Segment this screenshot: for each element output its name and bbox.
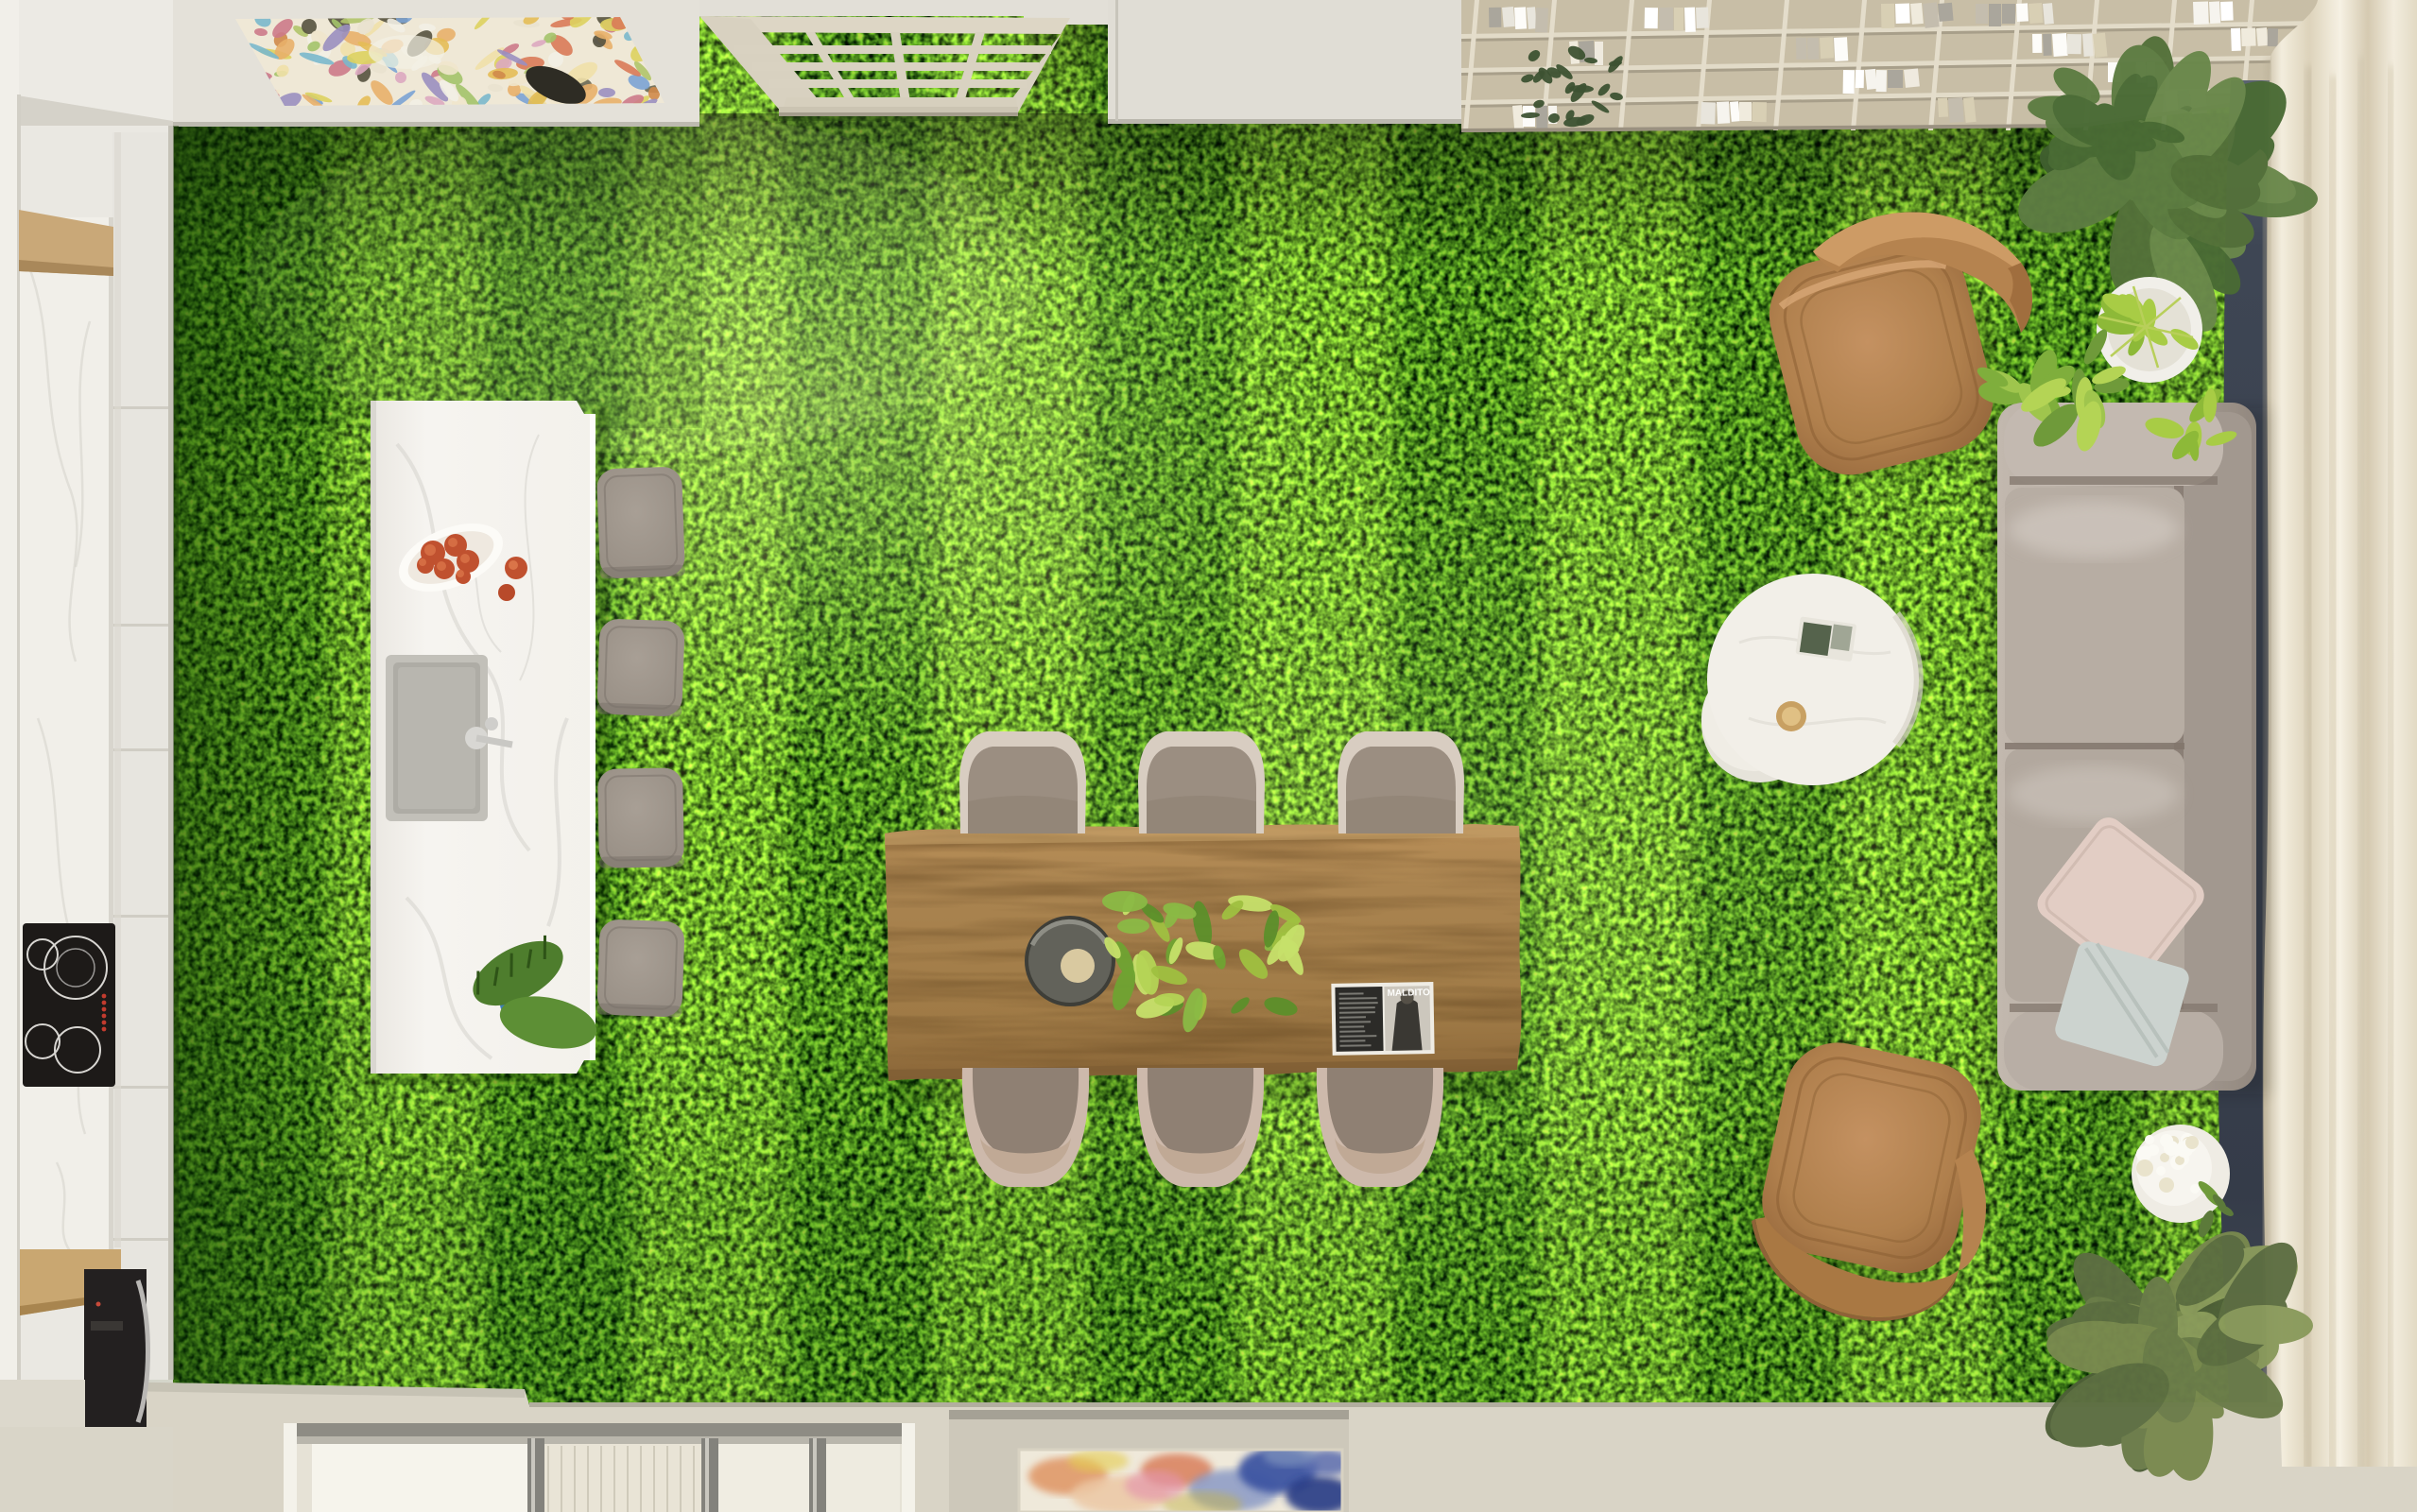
svg-text:MALDITO: MALDITO: [1387, 988, 1430, 999]
